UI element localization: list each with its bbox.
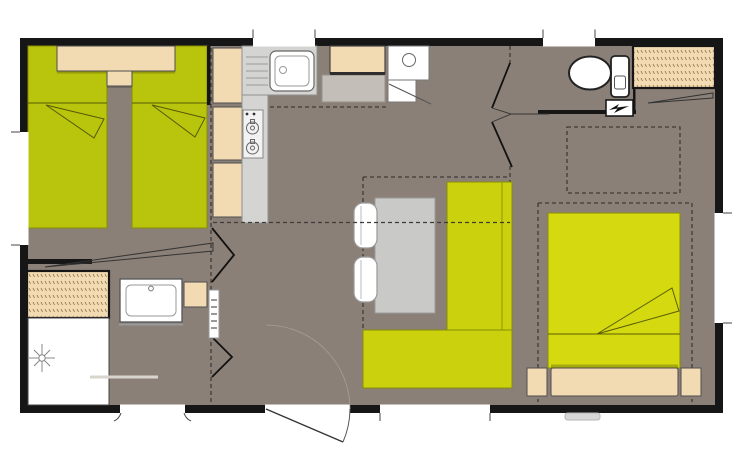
fridge	[330, 46, 385, 73]
entrance-door-swing-outer	[343, 409, 350, 442]
double-bed	[548, 213, 680, 368]
chair-1	[354, 203, 377, 248]
bathroom-louvre-window	[114, 405, 191, 422]
shower-drain	[39, 355, 45, 361]
fridge-front-edge	[330, 72, 385, 75]
bottom-window-glass	[380, 405, 490, 414]
headboard	[57, 46, 175, 71]
left-window-ticks	[11, 132, 20, 245]
nightstand	[107, 71, 132, 86]
hob-knob-2	[253, 113, 256, 116]
sink-drain	[280, 67, 287, 74]
shower	[28, 318, 109, 405]
fridge-shadow	[322, 75, 385, 102]
entrance-opening	[265, 405, 350, 414]
top-window-2-ticks	[543, 30, 595, 39]
top-window-1-glass	[253, 38, 315, 47]
toilet-bowl	[569, 57, 611, 90]
floor-plan-drawing	[0, 0, 749, 451]
wc-wardrobe-texture	[634, 47, 714, 87]
bathroom-cabinet	[184, 282, 207, 307]
water-heater-base	[388, 80, 416, 102]
hob-knob-1	[246, 113, 249, 116]
bottom-window-ticks	[380, 413, 490, 421]
top-window-2	[543, 30, 595, 47]
right-window-glass	[715, 213, 724, 323]
chair-2	[354, 257, 377, 302]
bathroom-wardrobe-texture	[28, 272, 108, 317]
nightstand-left	[527, 368, 547, 396]
sofa-bottom	[363, 330, 512, 388]
top-window-1	[253, 30, 315, 47]
right-window	[715, 213, 733, 323]
top-window-2-glass	[543, 38, 595, 47]
footboard	[551, 368, 678, 396]
louvre-window-glass	[120, 405, 185, 414]
top-window-1-ticks	[253, 30, 315, 39]
toilet-flush-button	[615, 76, 626, 89]
right-window-ticks	[723, 213, 732, 323]
louvre-window-curves	[114, 413, 191, 421]
dining-table	[375, 198, 435, 313]
entrance-door-leaf	[266, 409, 343, 442]
kitchen-cabinet-2	[213, 107, 242, 160]
nightstand-right	[681, 368, 701, 396]
washbasin-faucet	[149, 286, 154, 291]
left-window-glass	[20, 132, 29, 245]
kitchen-cabinet-1	[213, 48, 242, 103]
entry-step	[565, 413, 600, 420]
bedroom-kitchen-wall	[207, 46, 211, 105]
floor-plan	[0, 0, 749, 451]
bottom-window	[380, 405, 490, 422]
left-window	[11, 132, 29, 245]
water-heater-dial	[403, 54, 416, 67]
